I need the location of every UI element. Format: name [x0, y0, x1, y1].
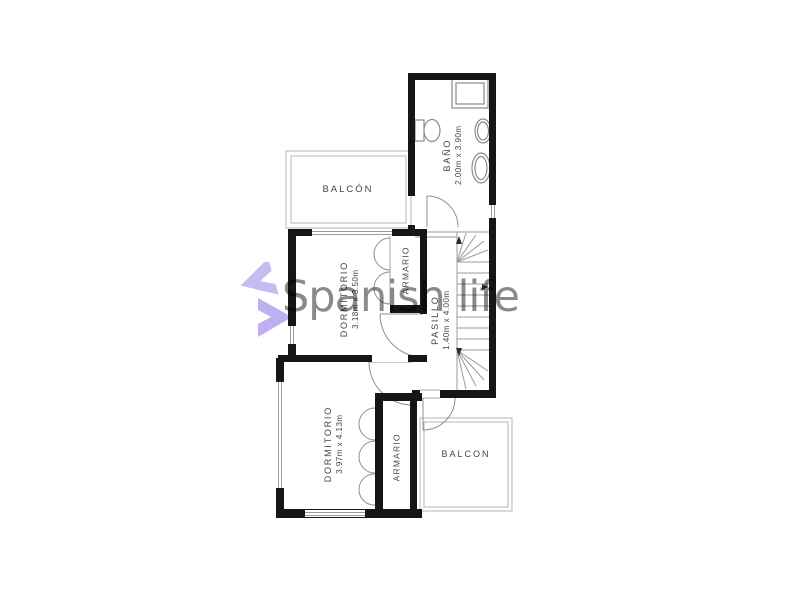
room-name: DORMITORIO: [323, 384, 334, 504]
room-label-balcon-top: BALCÓN: [298, 184, 398, 196]
door-arc-bedroom-1: [380, 314, 423, 357]
window-bedroom1-balcony: [312, 229, 392, 236]
room-name: DORMITORIO: [339, 239, 350, 359]
room-dimensions: 3.18m x 3.50m: [351, 239, 361, 359]
room-label-dormitorio-2: DORMITORIO 3.97m x 4.13m: [323, 384, 345, 504]
floorplan-canvas: BALCÓN BAÑO 2.00m x 3.90m DORMITORIO 3.1…: [0, 0, 798, 600]
room-dimensions: 3.97m x 4.13m: [335, 384, 345, 504]
window-bathroom-right: [489, 205, 496, 218]
room-dimensions: 2.00m x 3.90m: [454, 95, 464, 215]
room-name: BAÑO: [442, 95, 453, 215]
sink-icon: [475, 119, 491, 143]
room-label-dormitorio-1: DORMITORIO 3.18m x 3.50m: [339, 239, 361, 359]
closet-door-arcs-middle: [374, 236, 390, 305]
window-bedroom2-bottom: [305, 510, 365, 517]
room-name: BALCON: [441, 449, 490, 459]
closet-door-arcs-bottom: [359, 408, 375, 505]
toilet-icon: [415, 120, 440, 142]
balcony-bottom-railing: [420, 418, 512, 511]
room-name: ARMARIO: [401, 235, 412, 305]
floorplan-linework: [0, 0, 798, 600]
window-bedroom2-left: [276, 382, 284, 488]
room-label-bano: BAÑO 2.00m x 3.90m: [442, 95, 464, 215]
room-label-armario-2: ARMARIO: [392, 422, 403, 492]
stair-direction-arrow: [482, 284, 488, 290]
room-label-armario-1: ARMARIO: [401, 235, 412, 305]
threshold-lines: [420, 390, 440, 398]
room-dimensions: 1.40m x 4.00m: [442, 260, 452, 380]
window-bedroom1-left: [288, 326, 296, 344]
bidet-icon: [472, 153, 490, 183]
room-label-pasillo: PASILLO 1.40m x 4.00m: [430, 260, 452, 380]
door-arc-balcony: [423, 398, 455, 430]
room-label-balcon-bottom: BALCON: [416, 449, 516, 460]
door-opening-bedroom2: [372, 355, 408, 362]
room-name: ARMARIO: [392, 422, 403, 492]
room-name: PASILLO: [430, 260, 441, 380]
